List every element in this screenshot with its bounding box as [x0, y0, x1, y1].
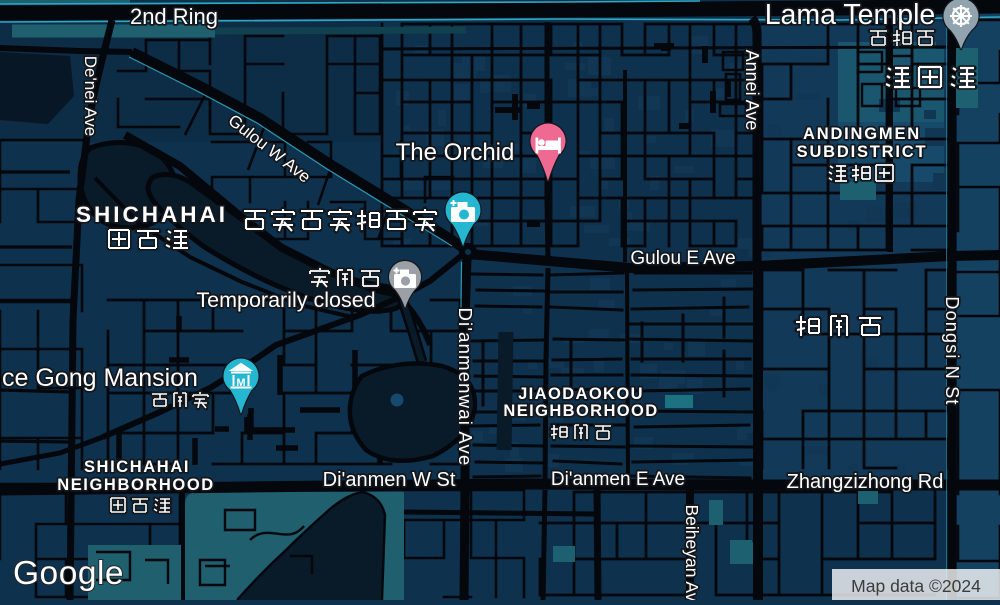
svg-text:Temporarily closed: Temporarily closed: [196, 288, 375, 312]
svg-text:Dongsi N St: Dongsi N St: [942, 296, 962, 405]
svg-text:2nd Ring: 2nd Ring: [130, 4, 218, 29]
svg-text:The Orchid: The Orchid: [396, 139, 515, 166]
svg-text:Di'anmen E Ave: Di'anmen E Ave: [551, 469, 685, 490]
svg-text:SHICHAHAI: SHICHAHAI: [76, 202, 228, 227]
svg-text:Di'anmenwai Ave: Di'anmenwai Ave: [455, 308, 476, 467]
svg-text:SUBDISTRICT: SUBDISTRICT: [797, 143, 928, 161]
svg-text:Gulou E Ave: Gulou E Ave: [630, 248, 735, 269]
svg-text:Google: Google: [13, 555, 124, 592]
svg-text:NEIGHBORHOOD: NEIGHBORHOOD: [503, 402, 658, 420]
svg-text:NEIGHBORHOOD: NEIGHBORHOOD: [57, 476, 215, 494]
svg-text:M: M: [236, 377, 245, 389]
svg-text:Annei Ave: Annei Ave: [742, 50, 762, 131]
svg-text:Zhangzizhong Rd: Zhangzizhong Rd: [787, 471, 944, 493]
svg-text:Di'anmen W St: Di'anmen W St: [323, 469, 456, 491]
svg-text:Map data ©2024: Map data ©2024: [851, 576, 981, 596]
svg-text:De'nei Ave: De'nei Ave: [81, 56, 100, 136]
svg-text:Lama Temple: Lama Temple: [765, 0, 936, 31]
svg-text:ANDINGMEN: ANDINGMEN: [803, 125, 921, 143]
svg-text:ce Gong Mansion: ce Gong Mansion: [2, 364, 198, 392]
svg-text:Beiheyan Av: Beiheyan Av: [682, 505, 702, 600]
svg-text:JIAODAOKOU: JIAODAOKOU: [518, 385, 644, 403]
svg-text:SHICHAHAI: SHICHAHAI: [84, 458, 190, 476]
